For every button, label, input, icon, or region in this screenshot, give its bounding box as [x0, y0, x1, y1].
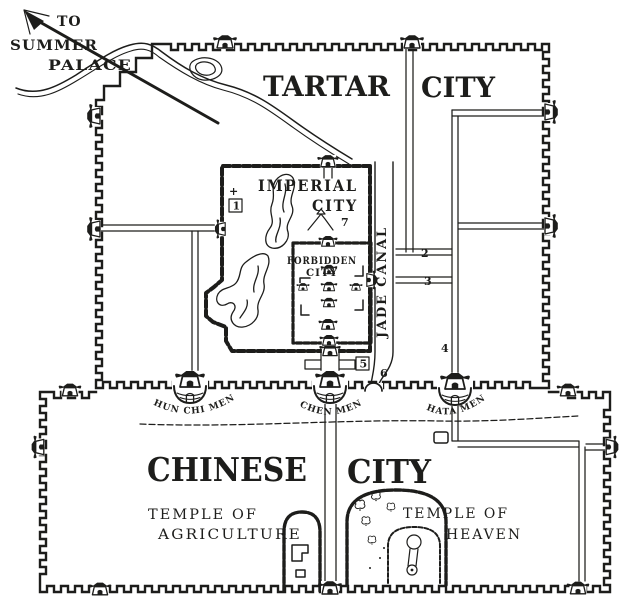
north-gate-road: [406, 46, 413, 252]
temple-of-agriculture: [284, 512, 320, 591]
gate-icon: [319, 319, 338, 330]
gate-icon: [318, 581, 342, 595]
tree-dot: [379, 557, 381, 559]
gate-icon: [567, 581, 590, 594]
temple-of-heaven-label-1: TEMPLE OF: [403, 506, 509, 522]
gate-icon: [31, 436, 44, 459]
small-building: [434, 432, 448, 443]
hata-men-gate-icon: [437, 373, 473, 406]
gate-icon: [87, 217, 101, 241]
tree-icon: [368, 536, 376, 545]
cross-icon: +: [229, 185, 238, 198]
temple-of-agriculture-label-1: TEMPLE OF: [148, 507, 258, 523]
to-summer-palace-label-1: TO: [57, 14, 82, 30]
marker-4: 4: [441, 342, 449, 355]
heaven-enclosure-wall: [347, 490, 446, 585]
marker-3: 3: [424, 275, 432, 288]
pond: [190, 58, 222, 80]
marker-7: 7: [341, 216, 349, 229]
temple-of-agriculture-label-2: AGRICULTURE: [157, 527, 302, 543]
chen-men-south-road: [325, 403, 336, 588]
east-gate2-road: [458, 223, 549, 229]
gate-icon: [296, 283, 309, 291]
gate-icon: [317, 155, 338, 168]
gate-icon: [321, 282, 338, 292]
imperial-city-label-2: CITY: [312, 196, 358, 215]
gate-icon: [544, 100, 558, 124]
gate-icon: [400, 35, 424, 49]
map-page: TO SUMMER PALACE TARTAR CITY CHINESE CIT…: [0, 0, 622, 613]
gate-icon: [319, 236, 338, 247]
shun-chi-men-gate-icon: [172, 371, 208, 404]
tree-icon: [362, 517, 370, 526]
marker-5: 5: [360, 358, 368, 371]
chinese-city-east-west-road: [140, 416, 578, 425]
peking-map: TO SUMMER PALACE TARTAR CITY CHINESE CIT…: [0, 0, 622, 613]
labels: TO SUMMER PALACE TARTAR CITY CHINESE CIT…: [0, 0, 522, 543]
temple-of-heaven-label-2: HEAVEN: [446, 527, 522, 543]
forbidden-city-label-1: FORBIDDEN: [287, 256, 357, 267]
chinese-city-label-2: CITY: [347, 452, 431, 491]
forbidden-city-label-2: CITY: [306, 268, 338, 279]
to-summer-palace-label-3: PALACE: [48, 58, 132, 74]
imperial-city-label-1: IMPERIAL: [258, 176, 358, 195]
jade-canal-label: JADE CANAL: [375, 226, 390, 339]
marker-2: 2: [421, 247, 429, 260]
agriculture-building-2: [296, 570, 305, 577]
shun-chi-men-road: [192, 231, 198, 386]
agriculture-enclosure-wall: [284, 512, 320, 591]
gate-icon: [87, 104, 101, 128]
gate-icon: [321, 298, 338, 308]
hata-men-south-road: [452, 395, 585, 588]
tree-dot: [383, 547, 385, 549]
gate-icon: [557, 383, 580, 396]
chen-men-gate-icon: [312, 371, 348, 404]
temple-of-heaven: [347, 490, 446, 585]
heaven-altar-icon: [407, 535, 421, 575]
gate-icon: [89, 582, 112, 595]
marker-1: 1: [233, 200, 241, 213]
gate-icon: [349, 283, 362, 291]
west-gate-road: [100, 225, 222, 231]
gate-icon: [605, 436, 618, 459]
tartar-city-label-1: TARTAR: [263, 70, 391, 103]
tree-icon: [387, 503, 395, 512]
gate-icon: [59, 383, 82, 396]
east-gate1-road: [452, 110, 549, 116]
hata-men-vertical-road: [452, 110, 458, 386]
marker-6: 6: [380, 367, 388, 380]
tartar-city-label-2: CITY: [421, 71, 496, 104]
gate-icon: [215, 220, 226, 239]
gate-icon: [213, 35, 237, 49]
lake-south: [217, 254, 269, 327]
agriculture-building-1: [292, 545, 308, 561]
gate-icon: [320, 335, 339, 346]
to-summer-palace-label-2: SUMMER: [10, 38, 98, 54]
gate-icon: [544, 214, 558, 238]
main-south-gates: [172, 371, 473, 406]
chinese-city-label-1: CHINESE: [147, 450, 307, 489]
tree-dot: [369, 567, 371, 569]
